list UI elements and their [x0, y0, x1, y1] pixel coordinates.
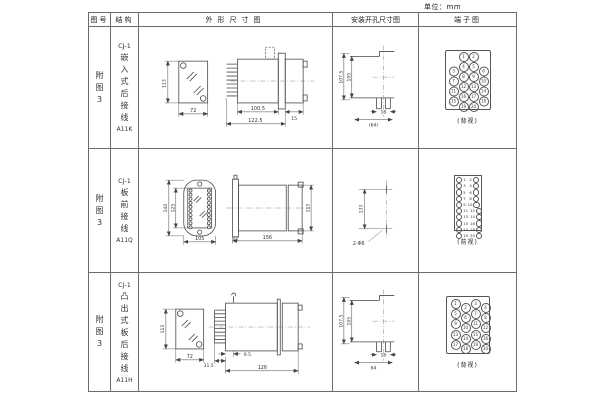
view-label: (背视) [457, 360, 478, 369]
dim-hole-outer: 107.5 [338, 70, 344, 83]
structure-cell-row2: CJ-1 板前接线 A11Q [111, 149, 139, 273]
dim-hole-inner: 105 [346, 317, 352, 326]
outline-diagram-a11h: 113 72 9.5 31.5 126 [139, 273, 333, 391]
structure-type: 凸出式板后接线 [121, 292, 129, 374]
spec-table: 图号 结构 外形尺寸图 安装开孔尺寸图 端子图 附图3 CJ-1 嵌入式后接线 … [88, 12, 517, 392]
terminal-circle: 13 [469, 82, 479, 92]
terminal-circle: 2 [461, 303, 471, 313]
terminal-circle: 19 [471, 340, 481, 350]
dim-front-width: 105 [195, 235, 204, 241]
structure-cell-row1: CJ-1 嵌入式后接线 A11K [111, 27, 139, 149]
model-label: CJ-1 [118, 177, 131, 185]
terminal-circle: 16 [459, 92, 469, 102]
terminal-circle: 10 [479, 77, 489, 87]
terminal-circle: 11 [449, 87, 459, 97]
terminal-circle: 11 [471, 319, 481, 329]
install-drawing: 133 2-Φ6 [333, 149, 418, 273]
dim-hole-outer: 107.5 [338, 315, 344, 328]
dim-front-width: 72 [190, 107, 196, 113]
dim-length: 156 [263, 234, 272, 240]
terminal-circle: 10 [461, 323, 471, 333]
dim-span: 64 [371, 366, 377, 372]
outline-drawing: 113 72 100.5 122.5 15 [139, 27, 332, 149]
model-code: A11H [116, 377, 132, 384]
terminal-circle: 1 [459, 52, 469, 62]
terminal-circle: 5 [469, 62, 479, 72]
terminal-circle: 20 [469, 102, 479, 112]
dim-outer-height: 140 [163, 203, 169, 212]
install-drawing: 107.5 105 16 (64) [333, 27, 418, 149]
dim-length: 126 [258, 365, 267, 371]
install-drawing: 107.5 105 16 64 [333, 273, 418, 391]
terminal-circle: 4 [481, 303, 491, 313]
terminal-circle: 15 [449, 97, 459, 107]
header-outline: 外形尺寸图 [139, 13, 333, 27]
outline-diagram-a11q: 140 125 105 156 115 [139, 149, 333, 273]
dim-inner-height: 125 [170, 203, 176, 212]
figure-cell-row1: 附图3 [89, 27, 111, 149]
terminal-circle: 17 [469, 92, 479, 102]
dim-front-height: 113 [161, 79, 167, 88]
terminal-circle: 6 [479, 67, 489, 77]
header-install: 安装开孔尺寸图 [333, 13, 419, 27]
terminal-circle: 3 [449, 67, 459, 77]
outline-drawing: 140 125 105 156 115 [139, 149, 332, 273]
dim-total-length: 122.5 [248, 117, 262, 123]
terminal-circle: 9 [451, 319, 461, 329]
terminal-grid: 1234567891011121314151617181920 [445, 50, 491, 110]
terminal-circle: 14 [461, 334, 471, 344]
dim-side-height: 115 [306, 203, 312, 212]
terminal-circle: 1 [451, 299, 461, 309]
terminal-circle: 8 [481, 313, 491, 323]
terminal-diagram-a11q: 12 34 56 78 910 1112 1314 1516 1718 1920… [419, 149, 516, 273]
terminal-circle: 2 [469, 52, 479, 62]
structure-cell-row3: CJ-1 凸出式板后接线 A11H [111, 273, 139, 391]
terminal-circle: 9 [469, 72, 479, 82]
terminal-circle: 16 [481, 334, 491, 344]
terminal-circle: 12 [459, 82, 469, 92]
dim-slot: 16 [381, 109, 387, 115]
header-structure: 结构 [111, 13, 139, 27]
terminal-diagram-a11k: 1234567891011121314151617181920 (背视) [419, 27, 516, 149]
dim-slot: 16 [381, 353, 387, 359]
structure-type: 嵌入式后接线 [121, 53, 129, 123]
figure-number: 附图3 [96, 315, 104, 349]
terminal-circle: 14 [479, 87, 489, 97]
terminal-circle: 5 [451, 309, 461, 319]
outline-drawing: 113 72 9.5 31.5 126 [139, 273, 332, 391]
figure-cell-row3: 附图3 [89, 273, 111, 391]
dim-holes-label: 2-Φ6 [353, 241, 365, 247]
install-diagram-a11k: 107.5 105 16 (64) [333, 27, 419, 149]
terminal-circle: 6 [461, 313, 471, 323]
header-terminal: 端子图 [419, 13, 516, 27]
dim-hole-inner: 105 [346, 72, 352, 81]
terminal-circle: 13 [451, 330, 461, 340]
model-label: CJ-1 [118, 281, 131, 289]
install-diagram-a11q: 133 2-Φ6 [333, 149, 419, 273]
terminal-circle: 17 [451, 340, 461, 350]
model-code: A11K [117, 126, 133, 133]
dim-cap: 15 [291, 115, 297, 121]
dim-body-length: 100.5 [251, 105, 265, 111]
terminal-circle: 12 [481, 323, 491, 333]
terminal-grid: 12 34 56 78 910 1112 1314 1516 1718 1920 [454, 175, 482, 231]
terminal-grid: 1234567891011121314151617181920 [446, 296, 490, 354]
terminal-diagram-a11h: 1234567891011121314151617181920 (背视) [419, 273, 516, 391]
outline-diagram-a11k: 113 72 100.5 122.5 15 [139, 27, 333, 149]
figure-number: 附图3 [96, 71, 104, 105]
dim-offset: 9.5 [244, 352, 251, 358]
model-label: CJ-1 [118, 42, 131, 50]
terminal-circle: 4 [459, 62, 469, 72]
terminal-circle: 19 [459, 102, 469, 112]
header-figure: 图号 [89, 13, 111, 27]
figure-cell-row2: 附图3 [89, 149, 111, 273]
install-diagram-a11h: 107.5 105 16 64 [333, 273, 419, 391]
dim-pins: 31.5 [204, 363, 214, 369]
terminal-circle: 3 [471, 299, 481, 309]
terminal-circle: 8 [459, 72, 469, 82]
terminal-circle: 15 [471, 330, 481, 340]
structure-type: 板前接线 [121, 188, 129, 234]
dim-span: (64) [369, 122, 379, 128]
terminal-circle: 7 [471, 309, 481, 319]
model-code: A11Q [116, 237, 132, 244]
figure-number: 附图3 [96, 194, 104, 228]
terminal-circle: 20 [481, 344, 491, 354]
terminal-circle: 18 [479, 97, 489, 107]
dim-hole-spacing: 133 [359, 204, 365, 213]
dim-front-height: 113 [160, 325, 166, 334]
terminal-circle: 7 [449, 77, 459, 87]
terminal-circle: 18 [461, 344, 471, 354]
dim-front-width: 72 [187, 354, 193, 360]
view-label: (前视) [457, 237, 478, 246]
view-label: (背视) [457, 116, 478, 125]
unit-label: 单位：mm [424, 2, 461, 12]
